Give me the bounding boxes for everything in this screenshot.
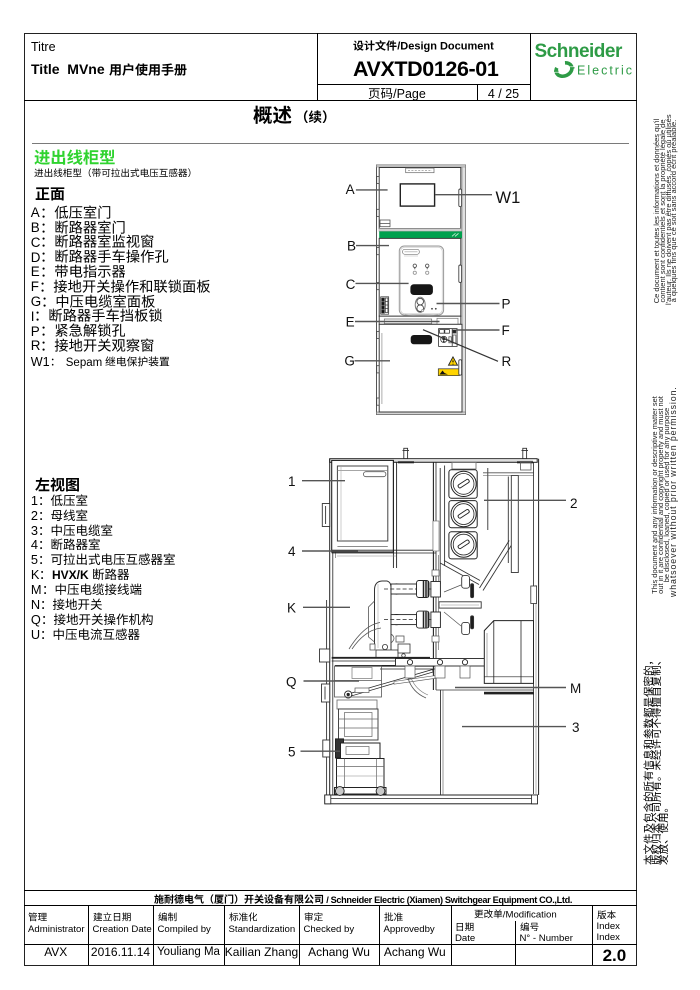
svg-text:R: R: [502, 354, 512, 369]
svg-text:M: M: [570, 681, 581, 696]
svg-text:1: 1: [288, 474, 296, 489]
svg-text:W1: W1: [496, 189, 521, 207]
svg-text:E: E: [346, 314, 355, 329]
svg-text:2: 2: [570, 496, 578, 511]
svg-text:3: 3: [572, 720, 580, 735]
svg-text:B: B: [347, 239, 356, 254]
svg-text:A: A: [346, 182, 355, 197]
svg-text:K: K: [287, 600, 296, 615]
svg-text:F: F: [502, 323, 510, 338]
svg-text:Electric: Electric: [577, 63, 634, 77]
svg-text:Q: Q: [286, 674, 297, 689]
svg-text:P: P: [502, 296, 511, 311]
svg-text:5: 5: [288, 744, 296, 759]
svg-text:C: C: [346, 277, 356, 292]
svg-text:G: G: [344, 354, 355, 369]
svg-text:4: 4: [288, 544, 296, 559]
